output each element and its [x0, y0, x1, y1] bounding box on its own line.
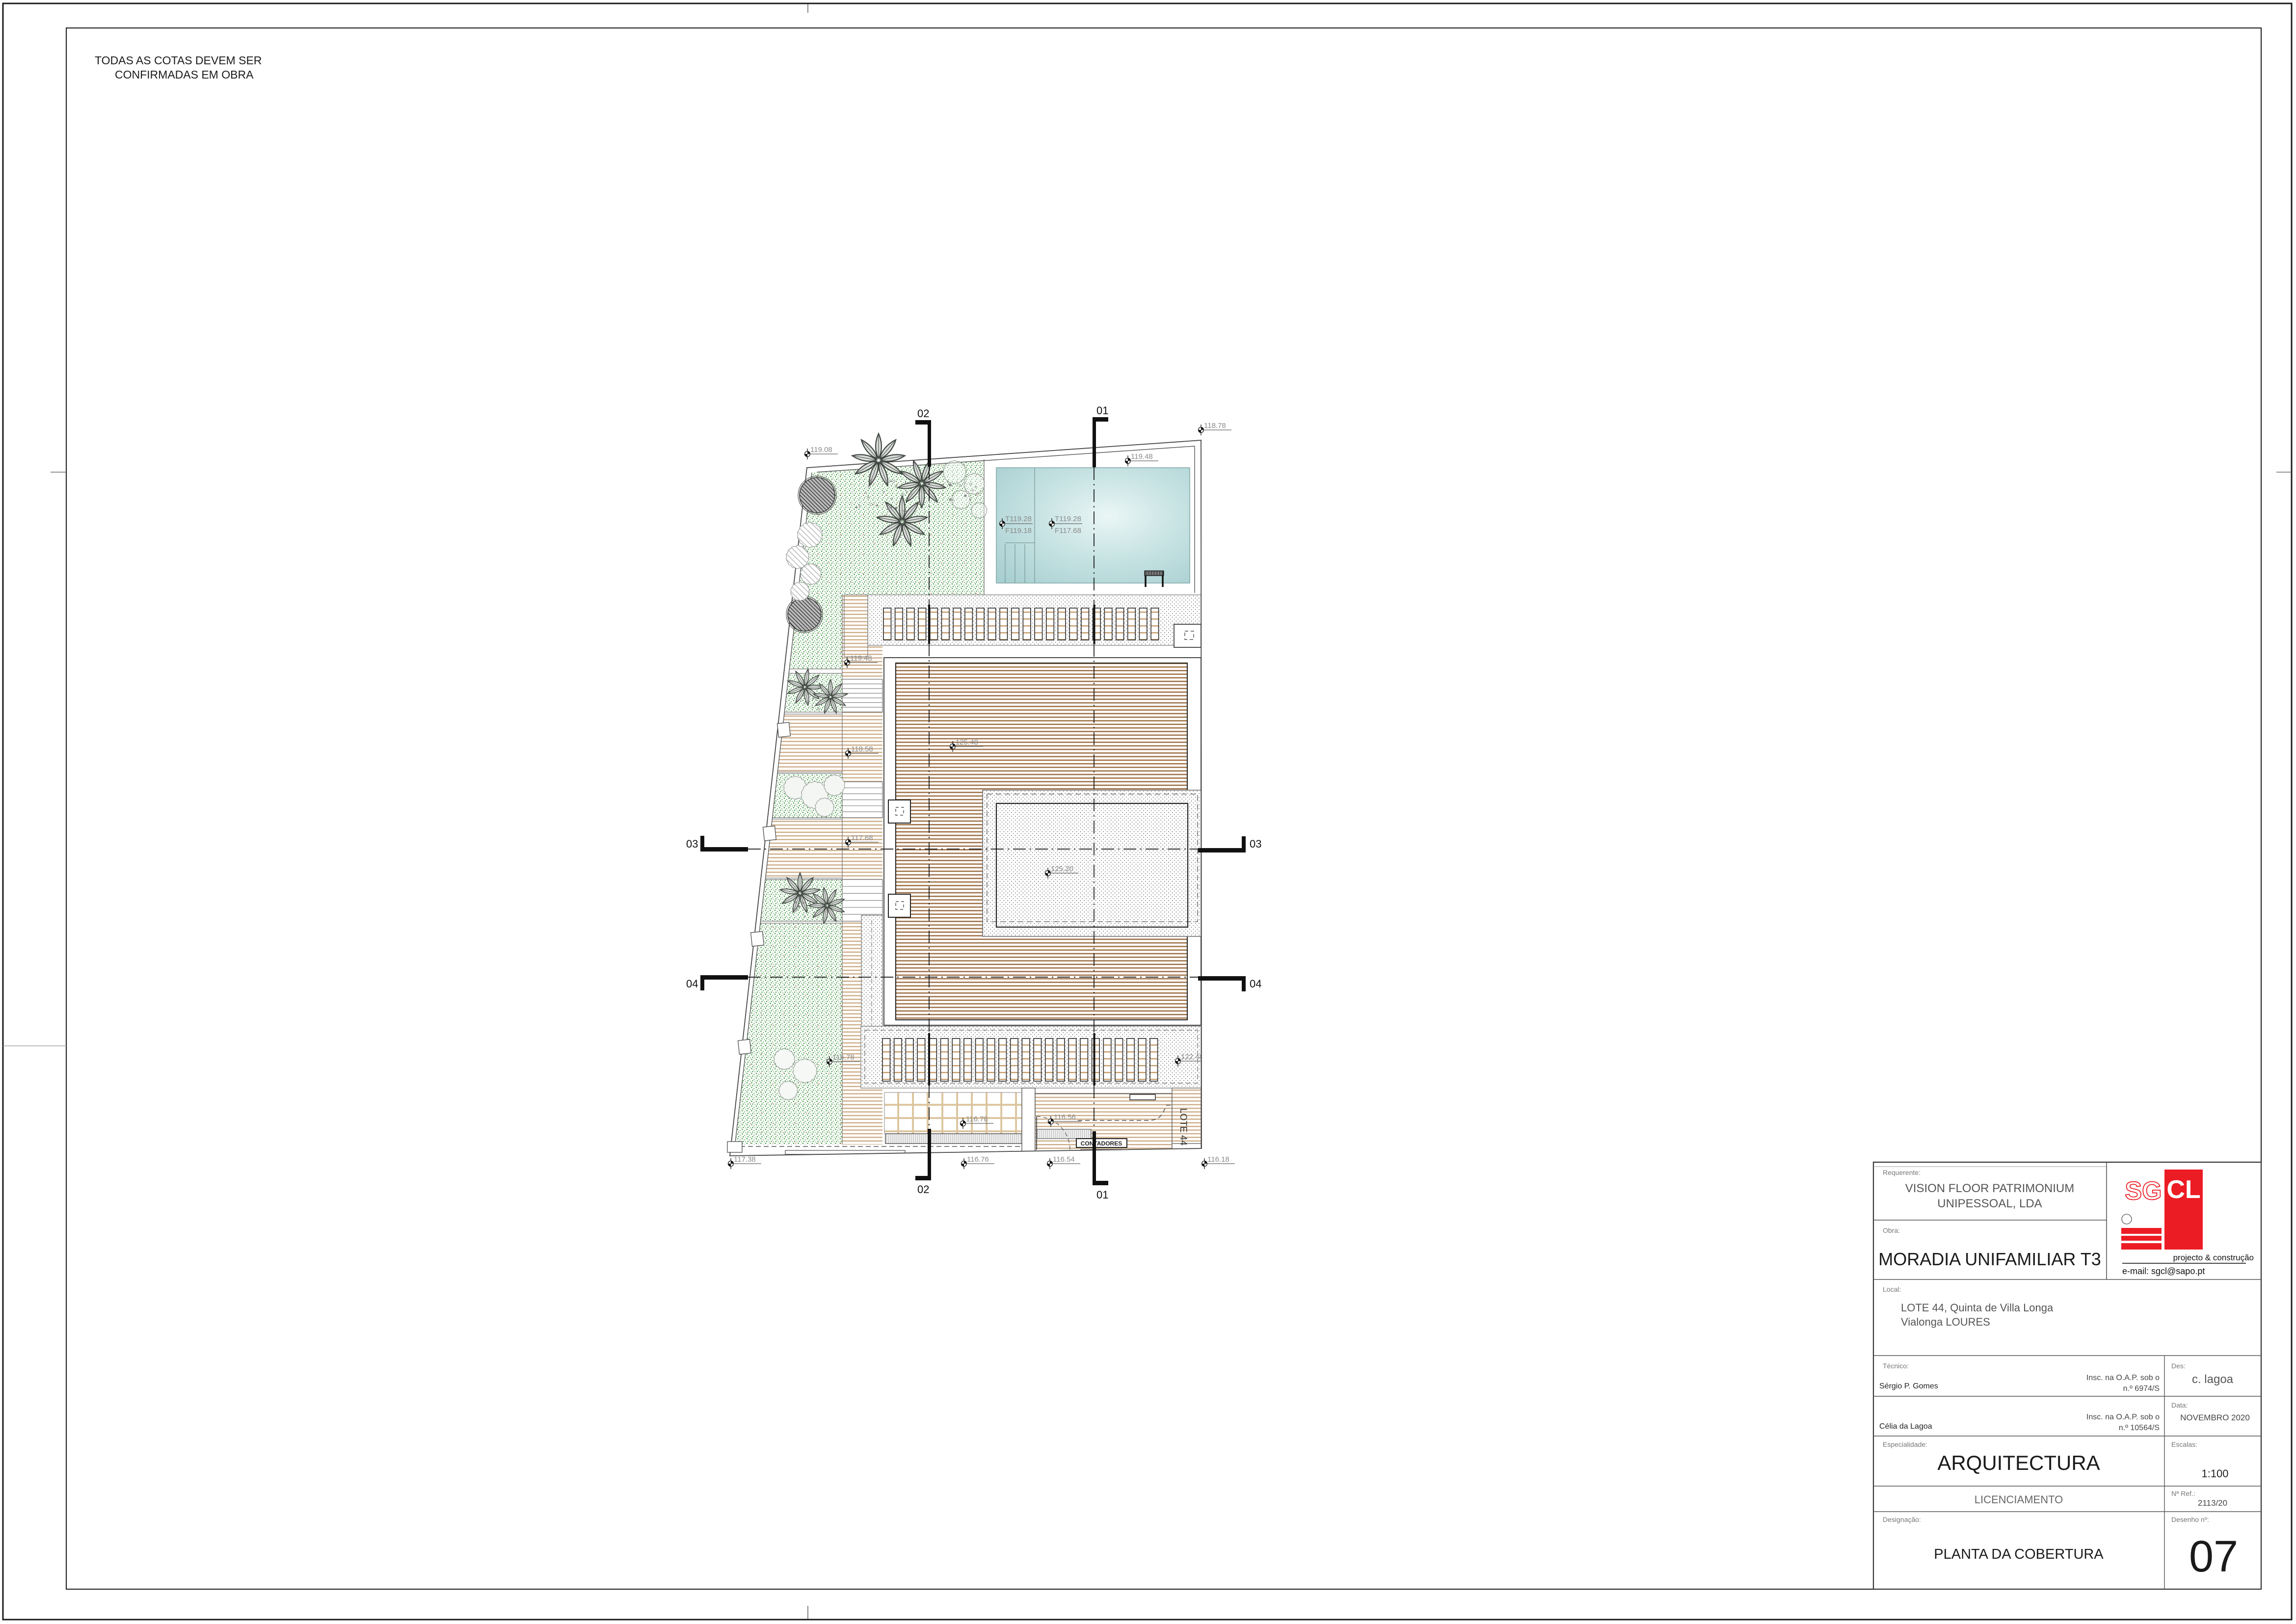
svg-text:Desenho nº:: Desenho nº:	[2171, 1516, 2209, 1523]
svg-text:c. lagoa: c. lagoa	[2192, 1373, 2234, 1386]
svg-text:03: 03	[1250, 838, 1261, 850]
svg-text:119.48: 119.48	[1131, 453, 1153, 461]
svg-text:LOTE 44: LOTE 44	[1178, 1108, 1188, 1145]
svg-text:125.48: 125.48	[956, 738, 978, 746]
svg-text:e-mail: sgcl@sapo.pt: e-mail: sgcl@sapo.pt	[2122, 1266, 2205, 1276]
svg-text:Célia da Lagoa: Célia da Lagoa	[1879, 1422, 1932, 1431]
svg-text:UNIPESSOAL, LDA: UNIPESSOAL, LDA	[1937, 1197, 2042, 1210]
svg-text:VISION FLOOR PATRIMONIUM: VISION FLOOR PATRIMONIUM	[1905, 1182, 2074, 1195]
svg-text:1:100: 1:100	[2201, 1467, 2228, 1480]
svg-text:T119.28: T119.28	[1005, 515, 1032, 523]
svg-text:CONFIRMADAS EM OBRA: CONFIRMADAS EM OBRA	[115, 68, 254, 81]
svg-text:Escalas:: Escalas:	[2171, 1440, 2197, 1448]
svg-text:03: 03	[686, 838, 698, 850]
svg-text:projecto & construção: projecto & construção	[2173, 1253, 2254, 1262]
svg-text:116.76: 116.76	[967, 1155, 989, 1164]
svg-text:118.78: 118.78	[1204, 422, 1226, 430]
svg-text:Obra:: Obra:	[1883, 1226, 1900, 1234]
svg-text:LICENCIAMENTO: LICENCIAMENTO	[1975, 1493, 2063, 1506]
svg-text:F117.68: F117.68	[1055, 527, 1081, 535]
svg-text:PLANTA DA COBERTURA: PLANTA DA COBERTURA	[1934, 1546, 2104, 1562]
svg-text:116.54: 116.54	[1053, 1155, 1075, 1164]
svg-text:04: 04	[1250, 978, 1261, 990]
svg-text:119.08: 119.08	[810, 446, 832, 454]
svg-text:Insc. na O.A.P. sob o: Insc. na O.A.P. sob o	[2086, 1374, 2160, 1382]
svg-text:125.20: 125.20	[1051, 865, 1073, 873]
svg-text:Técnico:: Técnico:	[1883, 1362, 1909, 1370]
svg-text:Requerente:: Requerente:	[1883, 1169, 1921, 1176]
svg-text:01: 01	[1096, 1189, 1108, 1201]
svg-text:122.48: 122.48	[1181, 1053, 1203, 1061]
svg-text:Insc. na O.A.P. sob o: Insc. na O.A.P. sob o	[2086, 1413, 2160, 1421]
svg-text:Des:: Des:	[2171, 1362, 2186, 1370]
svg-text:F119.18: F119.18	[1005, 527, 1032, 535]
svg-text:117.38: 117.38	[734, 1155, 756, 1164]
svg-text:n.º 10564/S: n.º 10564/S	[2119, 1424, 2160, 1432]
svg-text:04: 04	[686, 978, 698, 990]
svg-text:MORADIA UNIFAMILIAR T3: MORADIA UNIFAMILIAR T3	[1878, 1249, 2101, 1269]
svg-text:2113/20: 2113/20	[2198, 1498, 2227, 1508]
svg-text:116.78: 116.78	[832, 1053, 854, 1062]
svg-text:Data:: Data:	[2171, 1401, 2188, 1409]
svg-text:116.18: 116.18	[1207, 1155, 1229, 1164]
svg-text:Local:: Local:	[1883, 1285, 1901, 1293]
svg-text:Designação:: Designação:	[1883, 1516, 1921, 1523]
svg-text:117.68: 117.68	[851, 834, 873, 842]
svg-text:118.58: 118.58	[851, 745, 873, 753]
svg-text:CONTADORES: CONTADORES	[1081, 1140, 1122, 1147]
svg-text:NOVEMBRO 2020: NOVEMBRO 2020	[2180, 1413, 2250, 1422]
svg-text:Especialidade:: Especialidade:	[1883, 1440, 1927, 1448]
svg-text:07: 07	[2189, 1532, 2238, 1581]
svg-text:T119.28: T119.28	[1055, 515, 1081, 523]
svg-text:02: 02	[917, 407, 929, 420]
svg-text:Nª Ref.:: Nª Ref.:	[2171, 1490, 2195, 1497]
svg-text:02: 02	[917, 1183, 929, 1196]
svg-text:116.56: 116.56	[1054, 1113, 1076, 1121]
svg-text:Vialonga LOURES: Vialonga LOURES	[1901, 1316, 1990, 1328]
svg-text:119.48: 119.48	[850, 654, 872, 663]
svg-text:SG: SG	[2125, 1177, 2162, 1205]
svg-text:CL: CL	[2166, 1175, 2200, 1204]
svg-text:01: 01	[1096, 404, 1108, 417]
svg-text:Sérgio P. Gomes: Sérgio P. Gomes	[1879, 1382, 1938, 1390]
svg-text:116.78: 116.78	[966, 1115, 988, 1123]
svg-text:TODAS AS COTAS DEVEM SER: TODAS AS COTAS DEVEM SER	[95, 54, 262, 67]
svg-text:ARQUITECTURA: ARQUITECTURA	[1937, 1451, 2100, 1474]
svg-text:n.º 6974/S: n.º 6974/S	[2123, 1384, 2160, 1393]
svg-text:LOTE 44, Quinta de Villa Longa: LOTE 44, Quinta de Villa Longa	[1901, 1302, 2054, 1314]
